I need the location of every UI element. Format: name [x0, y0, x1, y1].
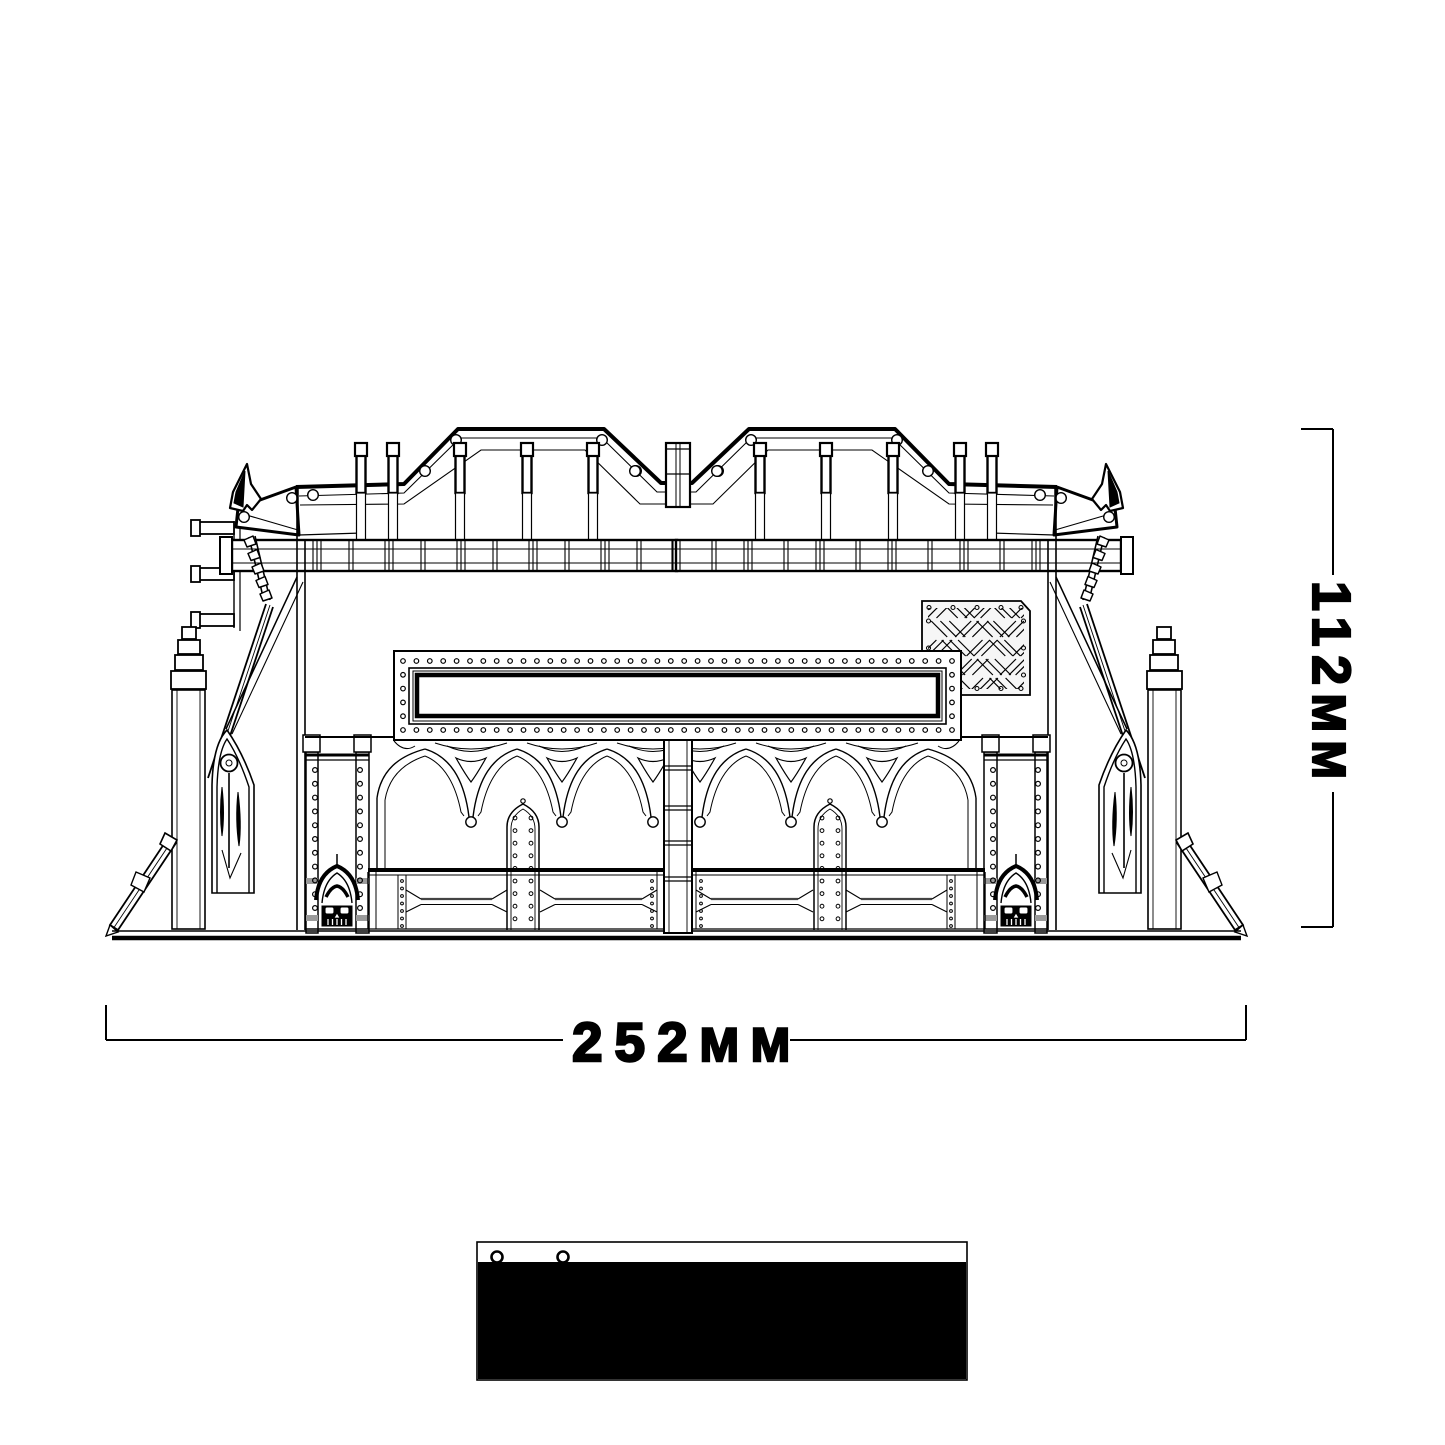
svg-text:112MM: 112MM: [1301, 581, 1361, 787]
svg-text:252MM: 252MM: [572, 1011, 802, 1073]
